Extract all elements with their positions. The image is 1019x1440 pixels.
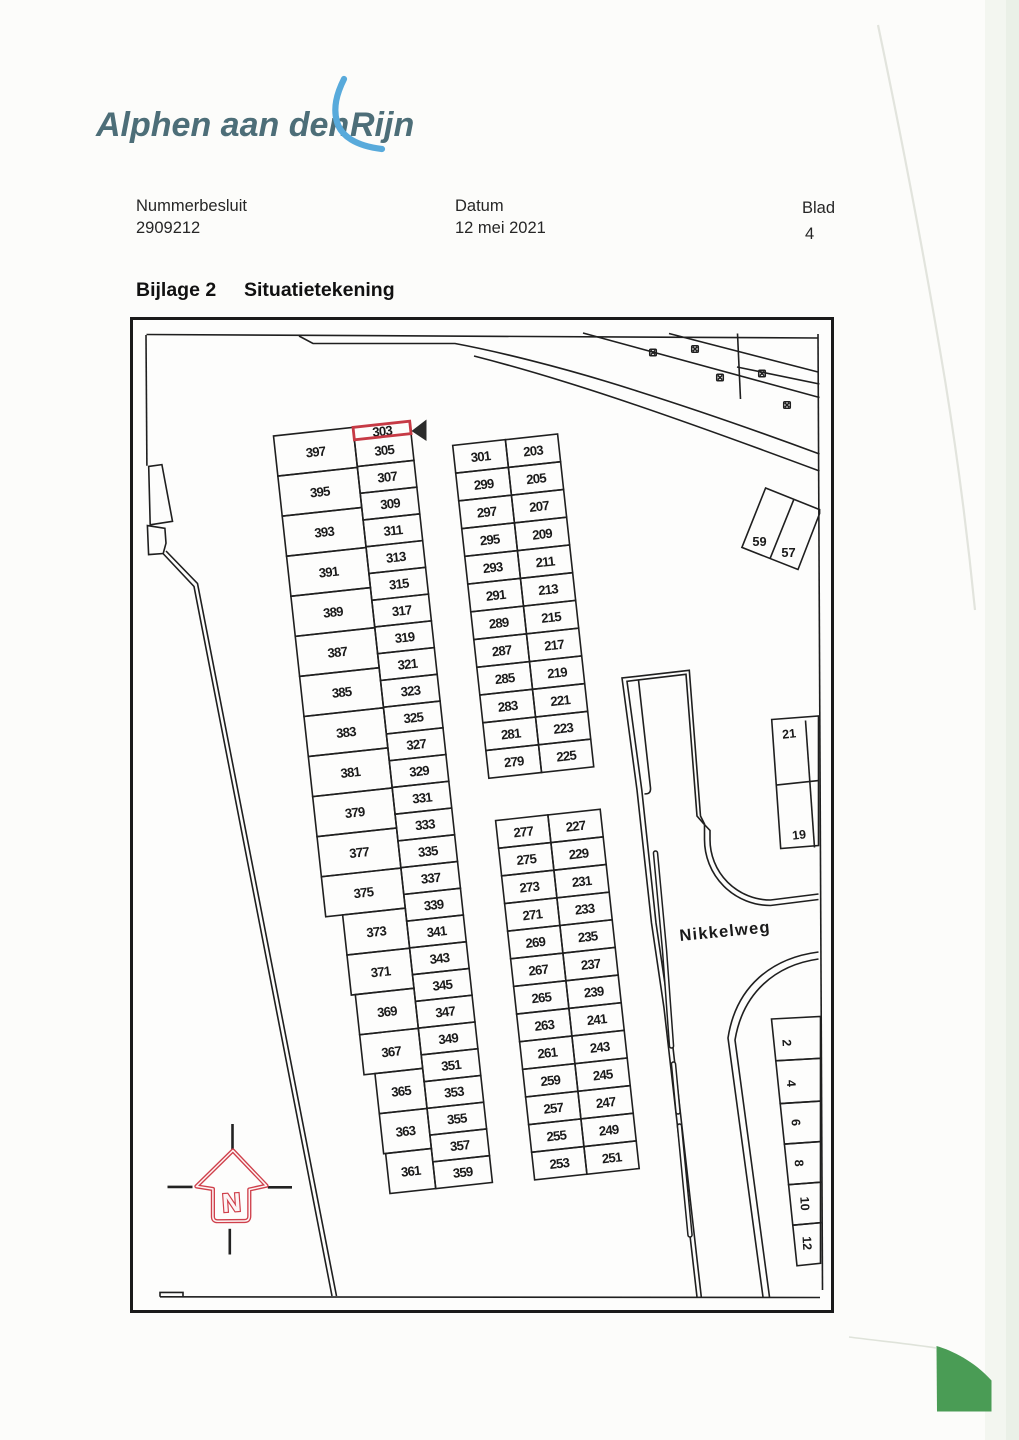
svg-text:2909212: 2909212 xyxy=(136,219,200,237)
svg-text:299: 299 xyxy=(473,476,495,493)
svg-text:253: 253 xyxy=(549,1155,571,1172)
svg-text:4: 4 xyxy=(784,1080,798,1088)
svg-text:237: 237 xyxy=(580,956,602,973)
svg-text:373: 373 xyxy=(366,923,388,940)
svg-text:229: 229 xyxy=(568,845,590,862)
svg-text:333: 333 xyxy=(414,816,436,833)
svg-text:273: 273 xyxy=(519,879,541,896)
svg-text:383: 383 xyxy=(335,724,357,741)
svg-text:281: 281 xyxy=(500,725,522,742)
svg-text:261: 261 xyxy=(537,1044,559,1061)
svg-text:361: 361 xyxy=(400,1163,422,1180)
svg-text:Alphen aan den: Alphen aan den xyxy=(95,106,349,144)
svg-text:2: 2 xyxy=(779,1039,793,1047)
svg-text:10: 10 xyxy=(797,1196,812,1211)
svg-text:245: 245 xyxy=(592,1066,614,1083)
svg-text:343: 343 xyxy=(429,950,451,967)
svg-text:395: 395 xyxy=(309,483,331,500)
svg-text:233: 233 xyxy=(574,901,596,918)
svg-text:385: 385 xyxy=(331,684,353,701)
svg-text:331: 331 xyxy=(411,789,433,806)
svg-text:257: 257 xyxy=(543,1100,565,1117)
svg-text:223: 223 xyxy=(553,720,575,737)
svg-text:393: 393 xyxy=(314,524,336,541)
svg-text:Nummerbesluit: Nummerbesluit xyxy=(136,197,247,215)
svg-text:221: 221 xyxy=(550,692,572,709)
svg-text:239: 239 xyxy=(583,983,605,1000)
svg-text:323: 323 xyxy=(400,682,422,699)
svg-text:Rijn: Rijn xyxy=(350,106,414,144)
svg-text:267: 267 xyxy=(528,961,550,978)
svg-text:327: 327 xyxy=(406,736,428,753)
svg-text:317: 317 xyxy=(391,602,413,619)
svg-text:313: 313 xyxy=(385,549,407,566)
svg-text:225: 225 xyxy=(556,748,578,765)
svg-text:367: 367 xyxy=(381,1043,403,1060)
svg-text:241: 241 xyxy=(586,1011,608,1028)
svg-text:Bijlage 2: Bijlage 2 xyxy=(136,279,216,301)
svg-text:277: 277 xyxy=(513,823,535,840)
svg-text:Blad: Blad xyxy=(802,199,835,217)
svg-text:381: 381 xyxy=(340,764,362,781)
svg-text:259: 259 xyxy=(540,1072,562,1089)
svg-text:379: 379 xyxy=(344,804,366,821)
svg-text:21: 21 xyxy=(781,726,796,741)
svg-text:215: 215 xyxy=(540,609,562,626)
svg-text:203: 203 xyxy=(522,442,544,459)
svg-text:275: 275 xyxy=(516,851,538,868)
svg-text:345: 345 xyxy=(432,977,454,994)
svg-text:287: 287 xyxy=(491,642,513,659)
svg-text:4: 4 xyxy=(805,225,814,243)
svg-text:357: 357 xyxy=(449,1137,471,1154)
svg-text:283: 283 xyxy=(497,698,519,715)
svg-text:235: 235 xyxy=(577,928,599,945)
svg-text:289: 289 xyxy=(488,615,510,632)
svg-text:265: 265 xyxy=(531,989,553,1006)
svg-text:217: 217 xyxy=(544,637,566,654)
svg-text:359: 359 xyxy=(452,1164,474,1181)
svg-text:329: 329 xyxy=(408,763,430,780)
svg-text:309: 309 xyxy=(379,495,401,512)
svg-text:315: 315 xyxy=(388,575,410,592)
svg-text:391: 391 xyxy=(318,564,340,581)
svg-text:369: 369 xyxy=(376,1003,398,1020)
svg-text:389: 389 xyxy=(322,604,344,621)
svg-text:Situatietekening: Situatietekening xyxy=(244,279,395,301)
svg-text:291: 291 xyxy=(485,587,507,604)
svg-text:355: 355 xyxy=(446,1110,468,1127)
svg-text:297: 297 xyxy=(476,504,498,521)
svg-text:353: 353 xyxy=(443,1084,465,1101)
svg-text:319: 319 xyxy=(394,629,416,646)
svg-text:377: 377 xyxy=(348,844,370,861)
svg-text:12 mei 2021: 12 mei 2021 xyxy=(455,219,546,237)
svg-text:205: 205 xyxy=(525,470,547,487)
svg-text:227: 227 xyxy=(565,818,587,835)
svg-text:8: 8 xyxy=(792,1159,806,1167)
svg-text:211: 211 xyxy=(535,553,556,570)
svg-text:209: 209 xyxy=(531,526,553,543)
svg-text:341: 341 xyxy=(426,923,448,940)
svg-text:Datum: Datum xyxy=(455,197,504,215)
svg-text:271: 271 xyxy=(522,906,544,923)
svg-text:293: 293 xyxy=(482,559,504,576)
svg-text:249: 249 xyxy=(598,1122,620,1139)
svg-text:335: 335 xyxy=(417,843,439,860)
svg-text:337: 337 xyxy=(420,870,442,887)
svg-text:375: 375 xyxy=(353,884,375,901)
svg-text:251: 251 xyxy=(601,1149,623,1166)
svg-text:305: 305 xyxy=(374,442,396,459)
svg-text:219: 219 xyxy=(547,664,569,681)
svg-text:321: 321 xyxy=(397,656,419,673)
svg-text:N: N xyxy=(221,1187,242,1218)
svg-text:57: 57 xyxy=(781,545,795,560)
svg-text:285: 285 xyxy=(494,670,516,687)
svg-text:207: 207 xyxy=(528,498,550,515)
svg-text:307: 307 xyxy=(377,469,399,486)
svg-text:347: 347 xyxy=(435,1003,457,1020)
svg-text:339: 339 xyxy=(423,896,445,913)
svg-text:6: 6 xyxy=(789,1119,803,1127)
svg-text:269: 269 xyxy=(525,934,547,951)
svg-text:365: 365 xyxy=(390,1083,412,1100)
svg-text:371: 371 xyxy=(370,963,392,980)
svg-text:351: 351 xyxy=(440,1057,462,1074)
svg-text:311: 311 xyxy=(383,522,404,539)
svg-text:301: 301 xyxy=(470,448,492,465)
svg-text:387: 387 xyxy=(327,644,349,661)
svg-text:295: 295 xyxy=(479,531,501,548)
svg-text:19: 19 xyxy=(791,827,806,842)
svg-text:243: 243 xyxy=(589,1039,611,1056)
svg-text:213: 213 xyxy=(537,581,559,598)
svg-text:255: 255 xyxy=(546,1127,568,1144)
svg-text:325: 325 xyxy=(403,709,425,726)
svg-text:279: 279 xyxy=(503,753,525,770)
svg-text:231: 231 xyxy=(571,873,593,890)
svg-text:397: 397 xyxy=(305,443,327,460)
svg-text:59: 59 xyxy=(752,534,766,549)
svg-text:349: 349 xyxy=(438,1030,460,1047)
svg-text:363: 363 xyxy=(395,1123,417,1140)
svg-text:263: 263 xyxy=(534,1017,556,1034)
svg-text:247: 247 xyxy=(595,1094,617,1111)
svg-text:12: 12 xyxy=(800,1236,815,1251)
